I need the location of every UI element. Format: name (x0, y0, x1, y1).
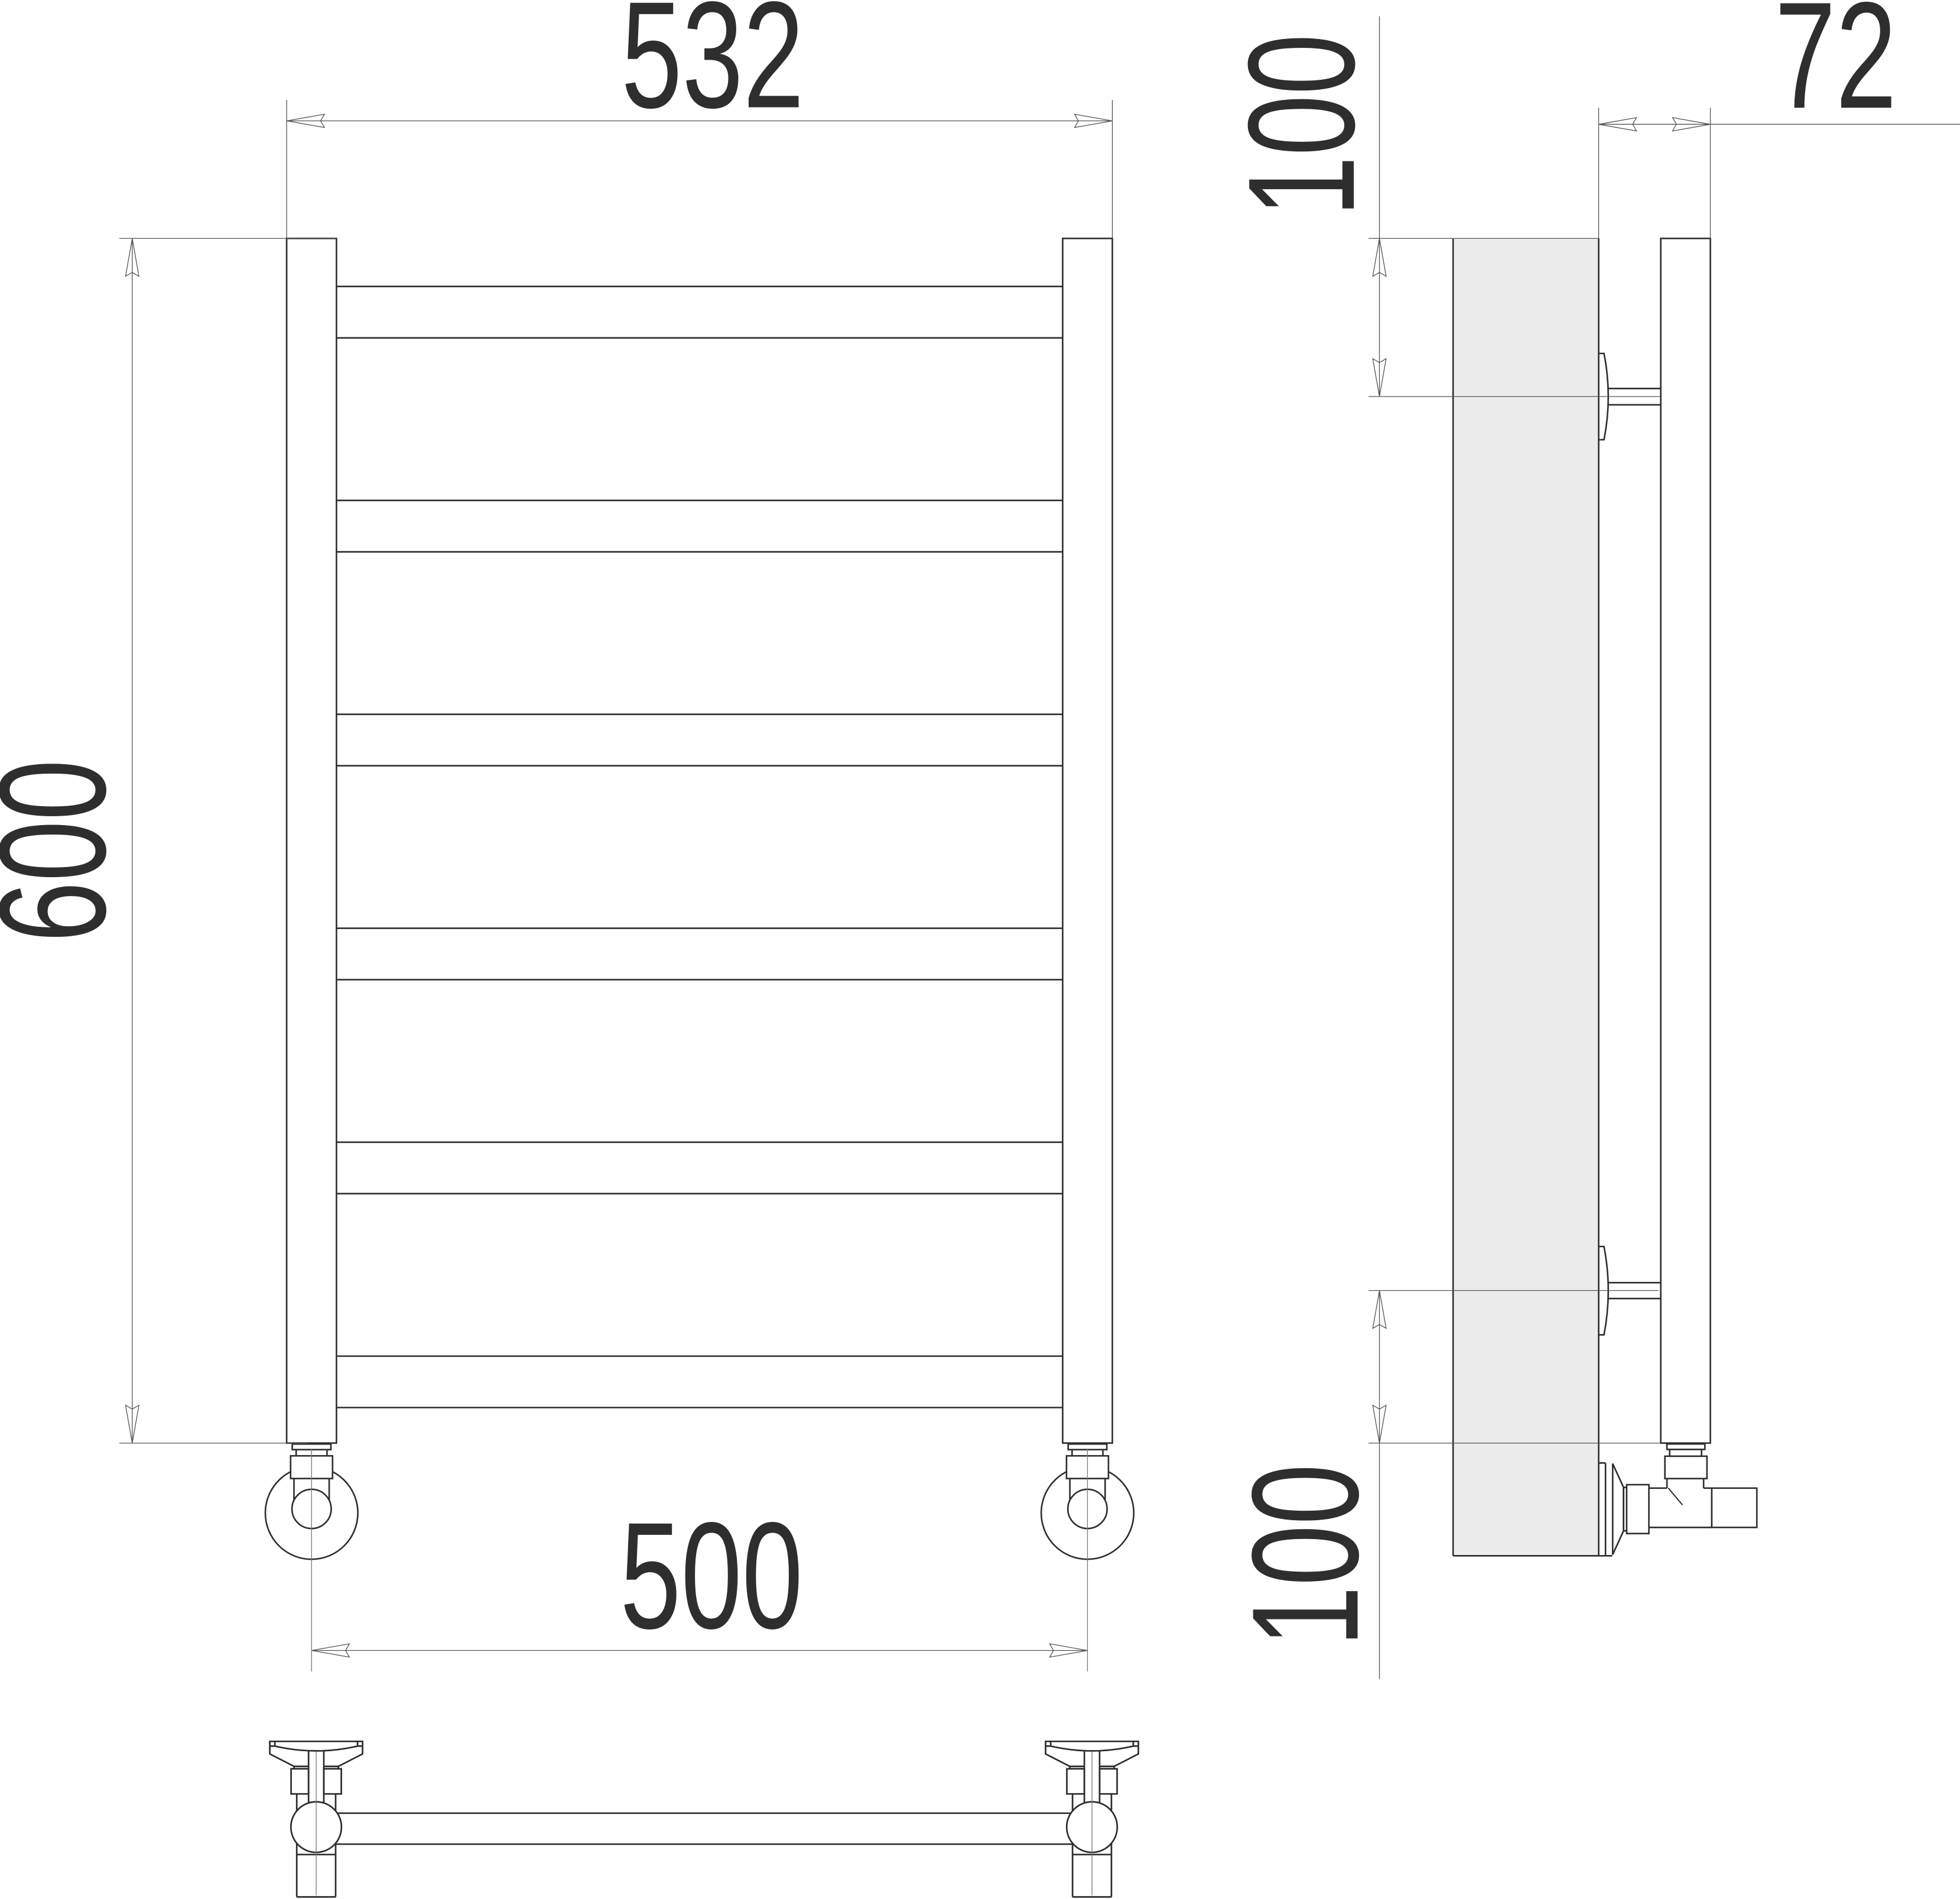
svg-text:600: 600 (0, 759, 138, 943)
svg-text:72: 72 (1775, 0, 1897, 140)
svg-text:532: 532 (621, 0, 804, 140)
svg-text:500: 500 (620, 1491, 803, 1661)
svg-text:100: 100 (1217, 34, 1386, 217)
svg-text:100: 100 (1221, 1464, 1390, 1647)
